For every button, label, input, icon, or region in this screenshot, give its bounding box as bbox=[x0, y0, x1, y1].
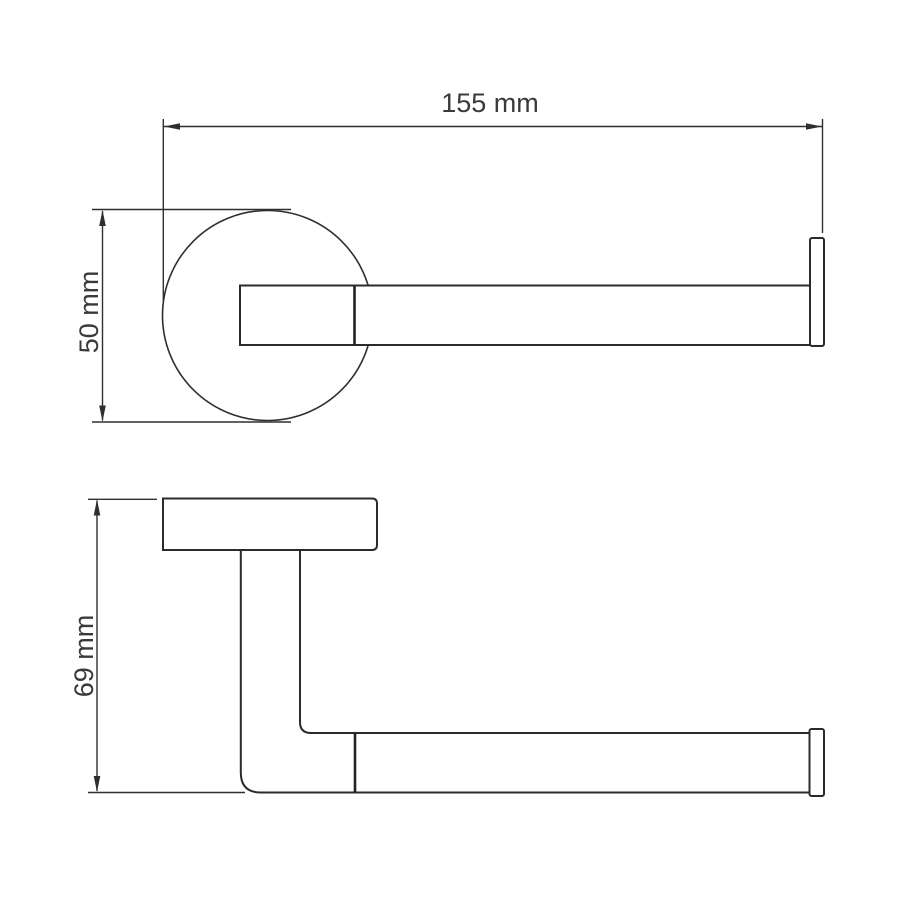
end-cap-front bbox=[810, 238, 824, 346]
arm-outline-outer bbox=[241, 550, 810, 793]
dimension-width: 155 mm bbox=[163, 88, 822, 301]
wall-plate-side bbox=[163, 499, 377, 551]
arm-outline-inner bbox=[300, 550, 810, 733]
arrowhead-up-icon bbox=[99, 210, 106, 226]
roll-bar-front bbox=[240, 286, 810, 346]
front-view bbox=[163, 211, 825, 421]
dimension-label-width: 155 mm bbox=[441, 88, 539, 118]
dimension-label-front-height: 50 mm bbox=[74, 271, 104, 354]
side-view bbox=[163, 499, 824, 797]
arrowhead-right-icon bbox=[806, 123, 822, 130]
dimension-label-side-height: 69 mm bbox=[69, 615, 99, 698]
end-cap-side bbox=[810, 729, 825, 796]
drawing-svg: 155 mm 50 mm bbox=[0, 0, 900, 900]
arrowhead-down-icon bbox=[94, 776, 101, 792]
arrowhead-left-icon bbox=[164, 123, 180, 130]
arrowhead-down-icon bbox=[99, 406, 106, 422]
technical-drawing-canvas: 155 mm 50 mm bbox=[0, 0, 900, 900]
arrowhead-up-icon bbox=[94, 500, 101, 516]
